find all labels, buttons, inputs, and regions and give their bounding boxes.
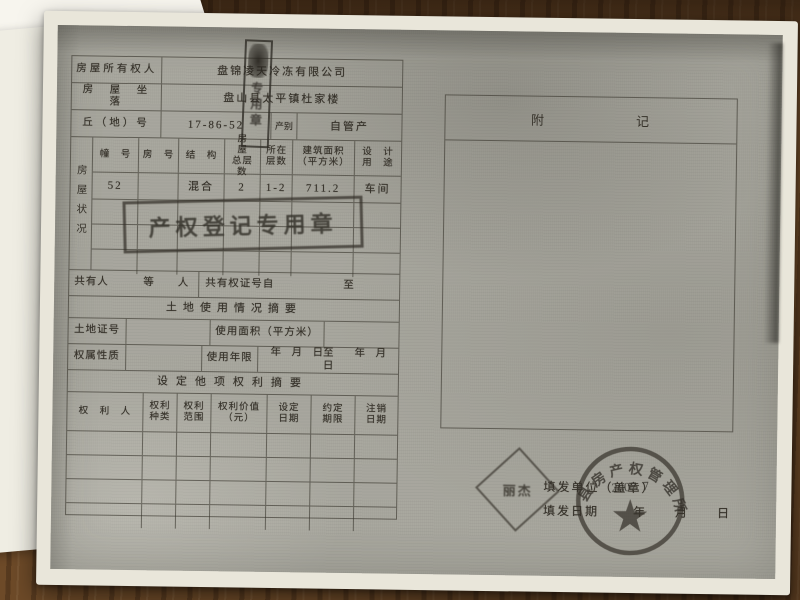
land-area-label: 使用面积（平方米） bbox=[210, 320, 324, 347]
col-cancel-date: 注销 日期 bbox=[355, 396, 398, 435]
certificate-page: 房屋所有权人 盘锦凌天冷冻有限公司 房 屋 坐 落 盘山县太平镇杜家楼 丘（地）… bbox=[36, 11, 798, 595]
appendix-box: 附 记 bbox=[440, 94, 738, 432]
col-agreed-term: 约定 期限 bbox=[311, 396, 356, 435]
co-owner-label: 共有人 等 人 bbox=[69, 270, 199, 297]
rights-empty-row bbox=[66, 503, 396, 532]
co-owner-cert-range: 共有权证号自 至 bbox=[199, 272, 399, 300]
land-cert-value bbox=[126, 319, 210, 345]
ink-smudge bbox=[248, 43, 269, 78]
col-right-type: 权利 种类 bbox=[143, 393, 178, 431]
property-category-value: 自管产 bbox=[297, 113, 401, 140]
appendix-title: 附 记 bbox=[445, 95, 737, 144]
cell-total-floors: 2 bbox=[224, 174, 260, 201]
wood-desk-background: 房屋所有权人 盘锦凌天冷冻有限公司 房 屋 坐 落 盘山县太平镇杜家楼 丘（地）… bbox=[0, 0, 800, 600]
building-status-side-label: 房屋状况 bbox=[69, 137, 93, 269]
rights-header-row: 权 利 人 权利 种类 权利 范围 权利价值 （元） 设定 日期 约定 期限 注… bbox=[67, 392, 398, 436]
owner-value: 盘锦凌天冷冻有限公司 bbox=[162, 57, 402, 86]
vertical-annotation-stamp: 专用章 bbox=[241, 39, 273, 148]
land-cert-label: 土地证号 bbox=[68, 318, 126, 344]
plot-label: 丘（地）号 bbox=[71, 110, 161, 137]
col-structure: 结 构 bbox=[179, 139, 225, 174]
owner-label: 房屋所有权人 bbox=[72, 56, 162, 83]
property-category-label: 产别 bbox=[271, 113, 297, 139]
col-building-no: 幢 号 bbox=[93, 137, 139, 172]
circular-official-stamp: 县房产权管理所 2007. 7 bbox=[567, 438, 693, 564]
col-designed-use: 设 计 用 途 bbox=[355, 141, 401, 176]
col-floor-area: 建筑面积 （平方米） bbox=[293, 140, 355, 175]
circular-stamp-graphic: 县房产权管理所 2007. 7 bbox=[567, 438, 693, 564]
cell-building-no: 52 bbox=[92, 172, 138, 199]
tenure-label: 权属性质 bbox=[68, 344, 126, 370]
appendix-title-char-2: 记 bbox=[636, 111, 651, 130]
land-area-value bbox=[324, 322, 398, 348]
col-set-date: 设定 日期 bbox=[267, 395, 312, 434]
cell-room-no bbox=[138, 173, 178, 200]
appendix-title-char-1: 附 bbox=[531, 109, 546, 128]
vertical-stamp-text: 专用章 bbox=[247, 81, 266, 130]
col-right-value: 权利价值 （元） bbox=[211, 394, 268, 433]
photocopy-area: 房屋所有权人 盘锦凌天冷冻有限公司 房 屋 坐 落 盘山县太平镇杜家楼 丘（地）… bbox=[50, 25, 783, 579]
name-seal-text: 丽杰 bbox=[502, 480, 532, 499]
cell-structure: 混合 bbox=[178, 174, 224, 201]
tenure-years-label: 使用年限 bbox=[202, 346, 258, 372]
tenure-value bbox=[126, 345, 202, 371]
star-icon bbox=[613, 499, 648, 532]
scan-edge-shadow bbox=[763, 43, 782, 343]
col-right-scope: 权利 范围 bbox=[177, 394, 212, 432]
tenure-dates: 年 月 日至 年 月 日 bbox=[258, 347, 398, 374]
registration-stamp: 产权登记专用章 bbox=[122, 196, 363, 254]
location-label: 房 屋 坐 落 bbox=[72, 83, 162, 110]
col-right-holder: 权 利 人 bbox=[67, 392, 144, 431]
location-value: 盘山县太平镇杜家楼 bbox=[162, 84, 402, 113]
property-form-table: 房屋所有权人 盘锦凌天冷冻有限公司 房 屋 坐 落 盘山县太平镇杜家楼 丘（地）… bbox=[65, 55, 403, 520]
circular-stamp-date: 2007. 7 bbox=[611, 479, 649, 495]
col-room-no: 房 号 bbox=[139, 138, 179, 173]
